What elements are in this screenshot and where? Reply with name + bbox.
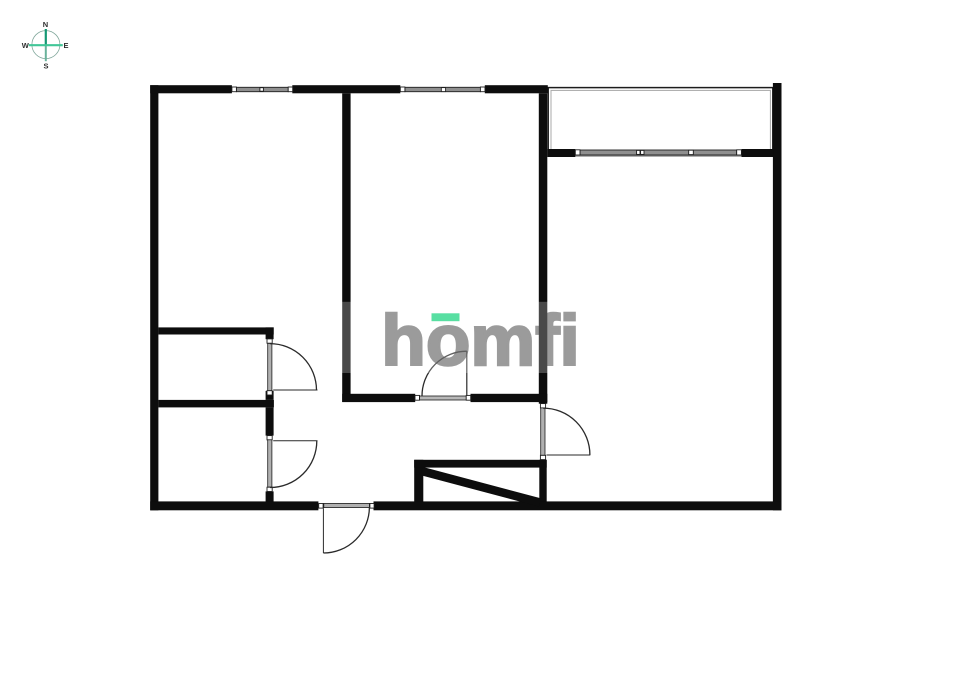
svg-text:N: N (43, 20, 48, 29)
svg-text:W: W (22, 41, 30, 50)
svg-text:S: S (43, 62, 48, 71)
svg-text:E: E (63, 41, 68, 50)
